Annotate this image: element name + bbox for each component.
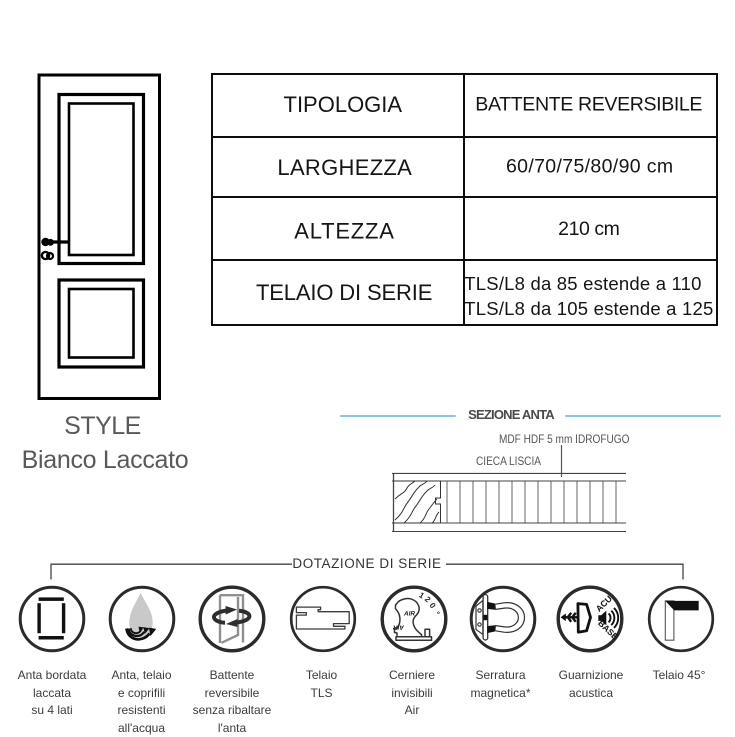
svg-text:AIR: AIR (403, 611, 415, 618)
svg-text:AIR: AIR (393, 624, 405, 631)
